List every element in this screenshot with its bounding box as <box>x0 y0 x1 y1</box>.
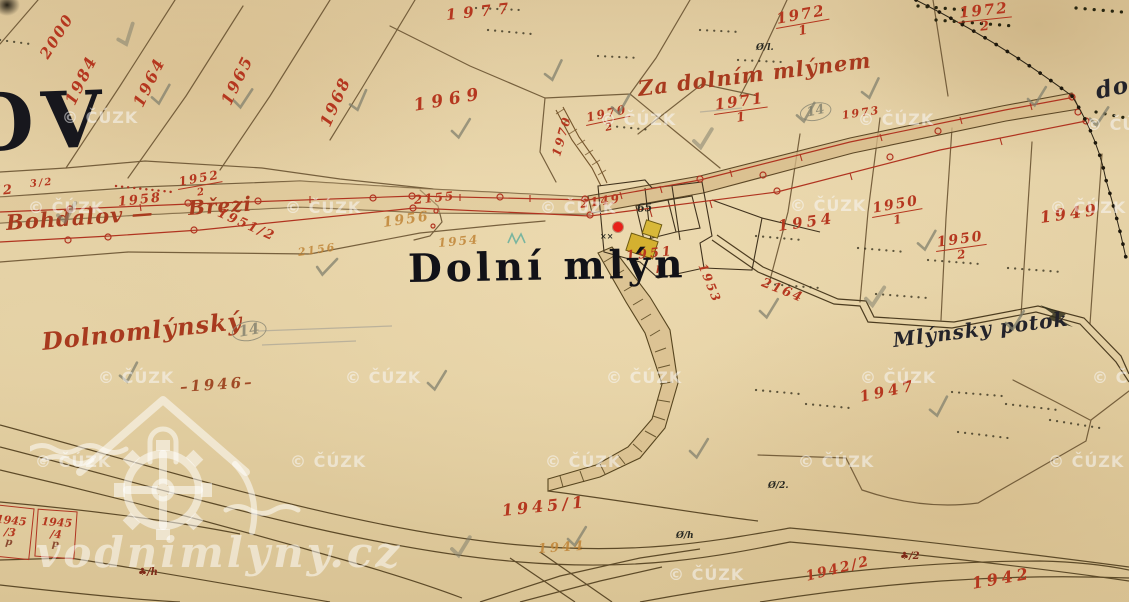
mill-building-symbols <box>626 220 662 259</box>
parcel-box: 1945/3p <box>0 504 35 560</box>
map-canvas[interactable]: 2000198419641965196819771969197019702197… <box>0 0 1129 602</box>
map-linework <box>0 0 1129 602</box>
parcel-box: 1945/4p <box>34 509 77 560</box>
scan-smudge <box>0 0 20 16</box>
mill-marker[interactable] <box>613 222 623 232</box>
